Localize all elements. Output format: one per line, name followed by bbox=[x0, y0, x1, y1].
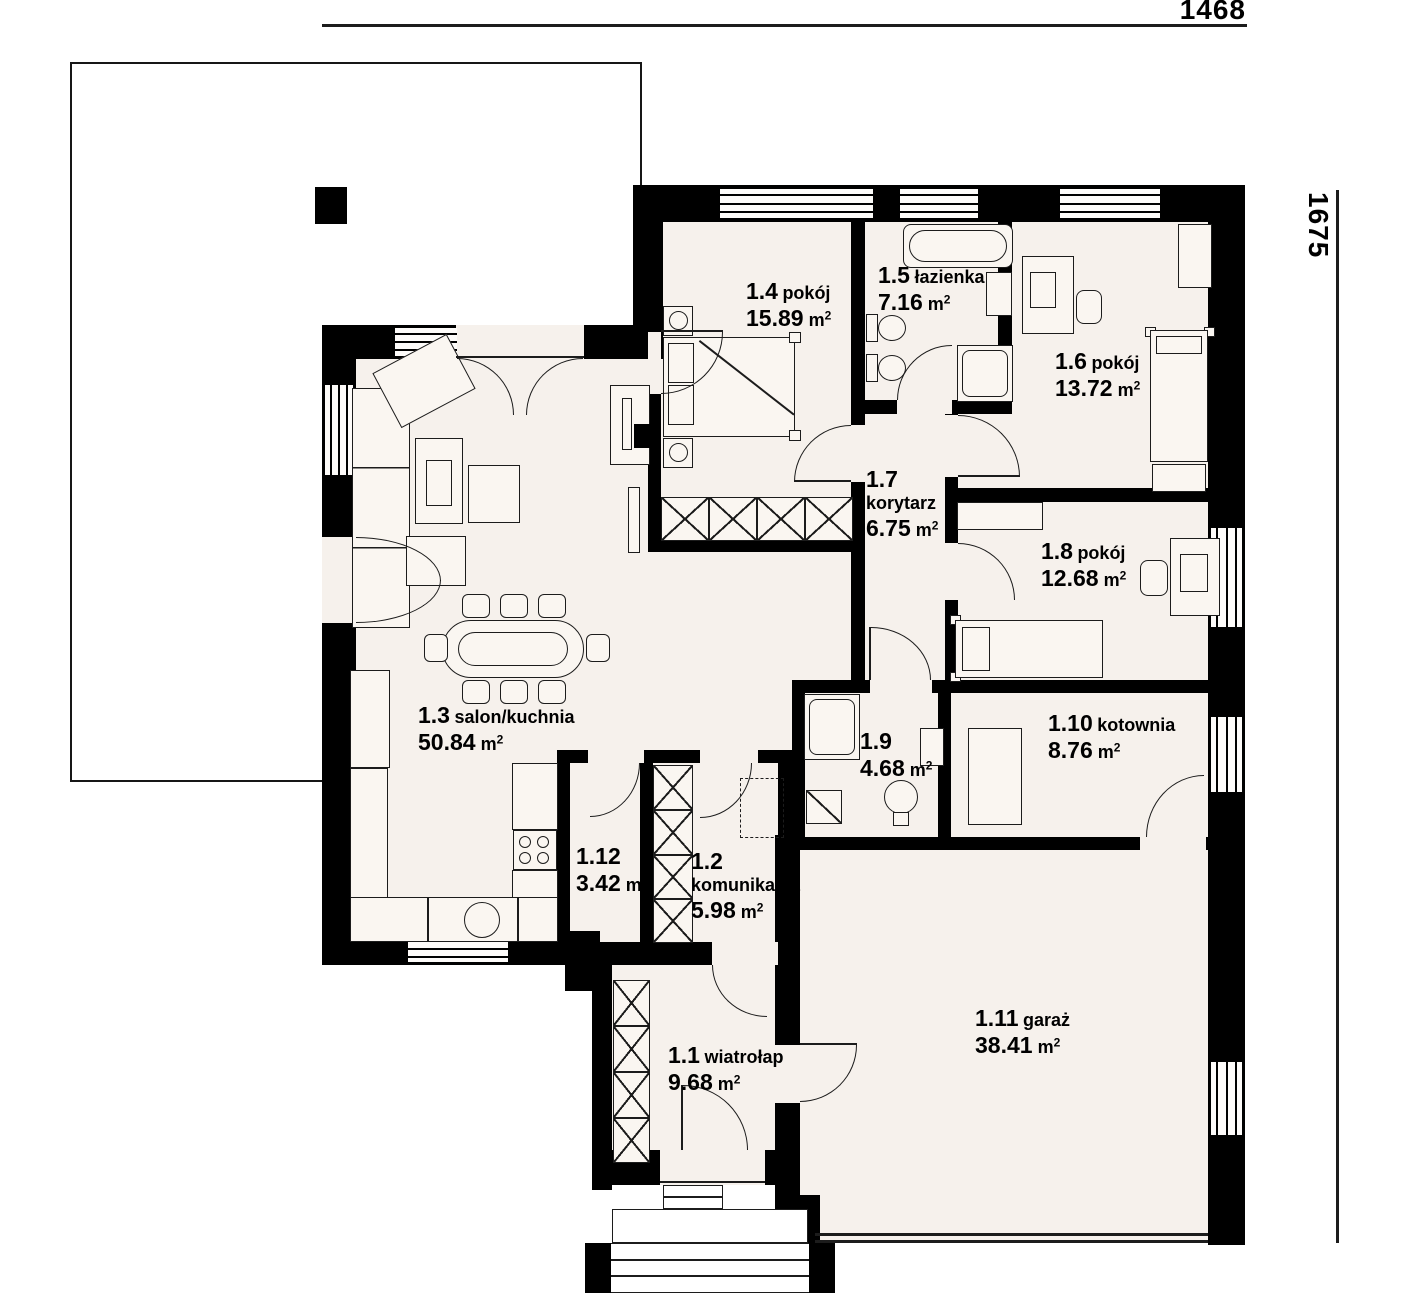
kitchen-counter bbox=[512, 870, 558, 898]
step-line bbox=[588, 1275, 822, 1277]
wall bbox=[557, 750, 570, 965]
wardrobe bbox=[613, 1118, 650, 1163]
shower-tray bbox=[809, 699, 855, 755]
counter-divider bbox=[517, 897, 519, 942]
door-opening bbox=[945, 415, 958, 477]
chair bbox=[538, 680, 566, 704]
wall bbox=[792, 680, 1245, 693]
wardrobe-open bbox=[1178, 224, 1212, 288]
bidet-tank bbox=[866, 354, 878, 382]
door-leaf bbox=[794, 480, 851, 482]
shower-tray bbox=[962, 350, 1008, 397]
porch-platform bbox=[612, 1209, 808, 1243]
dimension-line-right bbox=[1336, 190, 1339, 1243]
cabinet bbox=[806, 790, 842, 824]
porch-pillar bbox=[809, 1243, 835, 1293]
wardrobe bbox=[653, 765, 693, 810]
room-label-1-5: 1.5 łazienka 7.16m2 bbox=[878, 262, 984, 316]
door-opening bbox=[712, 942, 778, 965]
wall bbox=[938, 693, 951, 850]
porch-steps bbox=[588, 1243, 822, 1293]
window bbox=[1211, 1062, 1242, 1135]
entry-step bbox=[663, 1197, 723, 1209]
room-label-1-11: 1.11 garaż 38.41m2 bbox=[975, 1005, 1070, 1059]
burner bbox=[519, 836, 531, 848]
door-opening bbox=[322, 537, 356, 623]
burner bbox=[537, 852, 549, 864]
door-opening bbox=[1140, 837, 1206, 850]
kitchen-sink bbox=[464, 902, 500, 938]
room-label-1-7: 1.7 korytarz 6.75m2 bbox=[866, 466, 938, 542]
door-opening bbox=[660, 1150, 765, 1185]
room-label-1-12: 1.12 3.42m2 bbox=[576, 843, 648, 897]
dimension-line-top bbox=[322, 24, 1247, 27]
coffee-table-top bbox=[426, 460, 452, 506]
stove bbox=[513, 830, 557, 870]
wardrobe bbox=[613, 1072, 650, 1118]
chair bbox=[538, 594, 566, 618]
door-opening bbox=[456, 325, 584, 359]
threshold bbox=[660, 1181, 765, 1183]
burner bbox=[519, 852, 531, 864]
kitchen-counter bbox=[350, 897, 558, 942]
counter-divider bbox=[427, 897, 429, 942]
bed-foot-box bbox=[1152, 464, 1206, 492]
entry-step bbox=[663, 1185, 723, 1197]
desk-chair bbox=[1140, 560, 1168, 596]
door-leaf bbox=[661, 330, 723, 332]
dining-table-top bbox=[458, 632, 568, 666]
washbasin bbox=[986, 272, 1012, 316]
toilet bbox=[884, 780, 918, 814]
window bbox=[325, 385, 353, 475]
pillar bbox=[315, 187, 347, 224]
toilet-base bbox=[893, 812, 909, 826]
fridge bbox=[350, 670, 390, 768]
garage-door-line bbox=[815, 1233, 1208, 1236]
chair bbox=[462, 594, 490, 618]
room-label-1-1: 1.1 wiatrołap 9.68m2 bbox=[668, 1042, 783, 1096]
wardrobe-open bbox=[957, 502, 1043, 530]
floor-plan: 1468 1675 1.1 wiatrołap 9.68m2 1.2 komun… bbox=[0, 0, 1407, 1294]
wardrobe bbox=[653, 899, 693, 943]
toilet-tank bbox=[866, 314, 878, 342]
desk-chair bbox=[1076, 290, 1102, 324]
desk-top bbox=[1180, 554, 1208, 592]
wardrobe bbox=[653, 855, 693, 899]
tv-screen bbox=[622, 398, 632, 450]
room-label-1-2: 1.2 komunikacja 5.98m2 bbox=[691, 848, 800, 924]
pillow bbox=[1156, 336, 1202, 354]
door-opening bbox=[870, 680, 932, 693]
window bbox=[900, 189, 978, 218]
bed-post bbox=[789, 332, 801, 343]
bathtub-basin bbox=[909, 230, 1007, 262]
door-leaf bbox=[869, 627, 871, 680]
door-opening bbox=[700, 750, 758, 763]
window bbox=[1211, 717, 1242, 792]
chair bbox=[500, 594, 528, 618]
step-line bbox=[588, 1259, 822, 1261]
pillow bbox=[962, 627, 990, 671]
door-opening bbox=[897, 400, 952, 414]
lamp bbox=[669, 443, 688, 462]
wardrobe bbox=[661, 497, 709, 541]
toilet bbox=[878, 315, 906, 341]
fireplace bbox=[634, 424, 650, 448]
door-opening bbox=[588, 750, 644, 763]
wardrobe bbox=[757, 497, 805, 541]
wardrobe bbox=[805, 497, 853, 541]
door-leaf bbox=[800, 1043, 857, 1045]
window bbox=[720, 189, 873, 218]
window bbox=[1060, 189, 1160, 218]
burner bbox=[537, 836, 549, 848]
chair bbox=[424, 634, 448, 662]
chair bbox=[586, 634, 610, 662]
door-leaf bbox=[958, 475, 1020, 477]
room-label-1-10: 1.10 kotownia 8.76m2 bbox=[1048, 710, 1175, 764]
porch-pillar bbox=[585, 1243, 611, 1293]
loveseat bbox=[468, 465, 520, 523]
door-opening bbox=[851, 425, 865, 482]
wardrobe bbox=[613, 980, 650, 1026]
kitchen-cabinet bbox=[512, 763, 558, 830]
chair bbox=[462, 680, 490, 704]
room-label-1-8: 1.8 pokój 12.68m2 bbox=[1041, 538, 1126, 592]
threshold bbox=[456, 356, 584, 358]
wardrobe bbox=[709, 497, 757, 541]
room-label-1-3: 1.3 salon/kuchnia 50.84m2 bbox=[418, 702, 574, 756]
door-opening bbox=[945, 543, 958, 600]
wardrobe bbox=[653, 810, 693, 855]
bed-post bbox=[789, 430, 801, 441]
dimension-height: 1675 bbox=[1302, 192, 1334, 258]
dimension-width: 1468 bbox=[1150, 0, 1246, 26]
chair bbox=[500, 680, 528, 704]
boiler bbox=[968, 728, 1022, 825]
wall bbox=[775, 1103, 800, 1195]
room-label-1-6: 1.6 pokój 13.72m2 bbox=[1055, 348, 1140, 402]
cabinet bbox=[628, 487, 640, 553]
room-label-1-4: 1.4 pokój 15.89m2 bbox=[746, 278, 831, 332]
room-label-1-9: 1.9 4.68m2 bbox=[860, 728, 932, 782]
wardrobe bbox=[613, 1026, 650, 1072]
garage-door-line bbox=[815, 1240, 1208, 1243]
lamp bbox=[669, 311, 688, 330]
kitchen-counter bbox=[350, 768, 388, 898]
desk-top bbox=[1030, 272, 1056, 308]
